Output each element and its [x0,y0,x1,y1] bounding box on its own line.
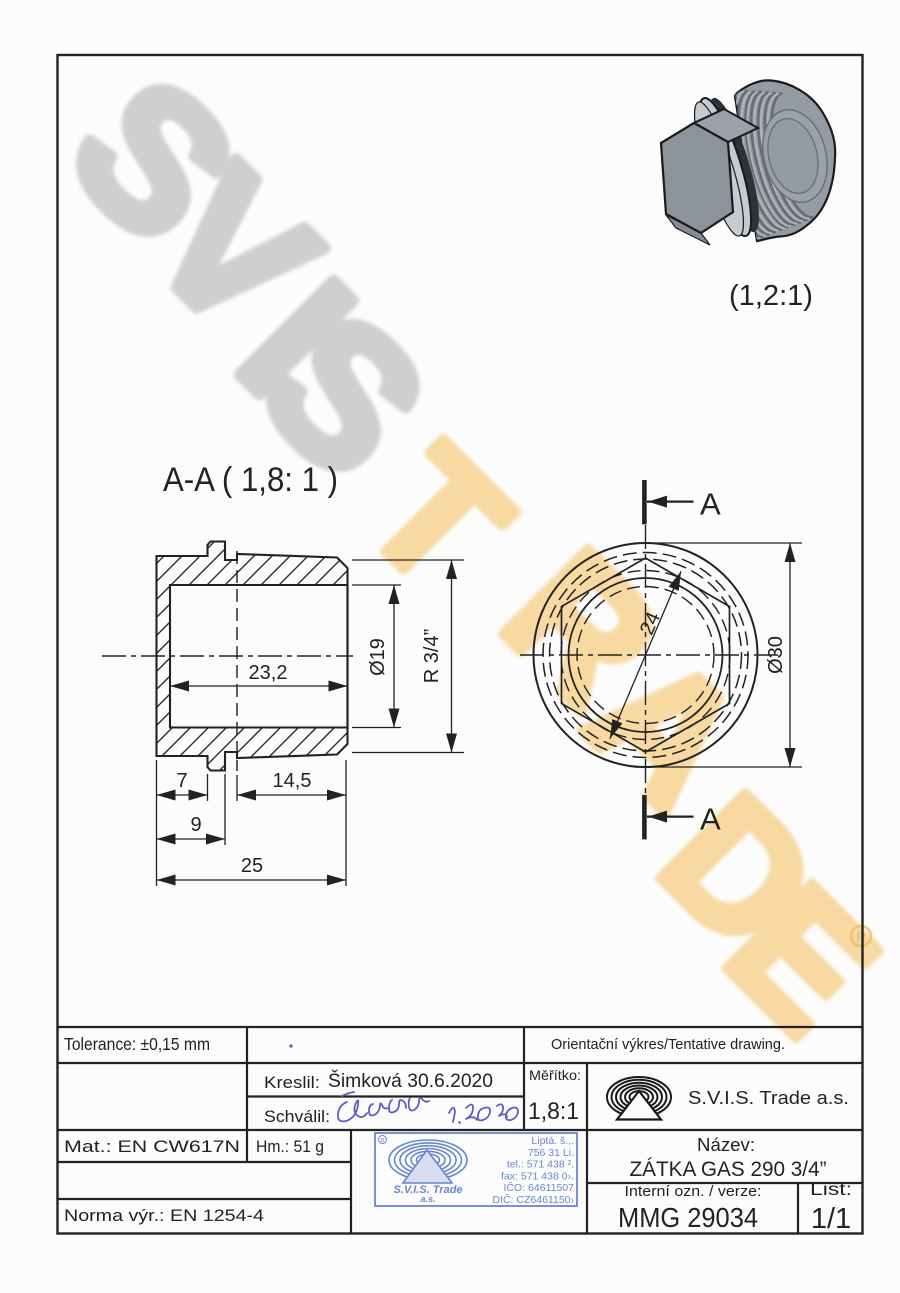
svg-text:Kreslil:: Kreslil: [264,1073,320,1092]
svg-text:Ø19: Ø19 [367,638,389,676]
svg-text:Interní ozn. / verze:: Interní ozn. / verze: [625,1183,762,1200]
svg-text:7: 7 [176,770,187,792]
svg-text:Hm.: 51 g: Hm.: 51 g [256,1137,324,1156]
svg-text:9: 9 [190,814,201,836]
svg-text:Název:: Název: [697,1135,755,1155]
svg-text:25: 25 [241,855,263,877]
svg-text:1/1: 1/1 [811,1203,851,1235]
svg-text:IČO: 64611507: IČO: 64611507 [504,1181,575,1194]
svg-text:R: R [380,1139,385,1145]
svg-text:Ø30: Ø30 [765,636,787,674]
svg-text:DIČ: CZ6461150›: DIČ: CZ6461150› [492,1193,574,1206]
svg-text:Tolerance: ±0,15 mm: Tolerance: ±0,15 mm [64,1034,210,1054]
svg-text:Liptá. š.,.: Liptá. š.,. [531,1135,574,1147]
svg-text:23,2: 23,2 [249,662,288,684]
svg-text:Orientační výkres/Tentative dr: Orientační výkres/Tentative drawing. [551,1036,785,1053]
svg-text:tel.: 571 438 ².: tel.: 571 438 ². [507,1159,574,1171]
svg-text:14,5: 14,5 [273,770,312,792]
svg-text:R: R [856,929,866,945]
svg-text:Norma výr.: EN 1254-4: Norma výr.: EN 1254-4 [64,1206,264,1225]
svg-text:fax: 571 438 0›.: fax: 571 438 0›. [501,1170,574,1182]
svg-text:MMG 29034: MMG 29034 [618,1202,758,1233]
svg-text:ZÁTKA GAS 290 3/4”: ZÁTKA GAS 290 3/4” [630,1158,827,1181]
svg-text:Schválil:: Schválil: [264,1107,330,1126]
svg-text:Mat.: EN CW617N: Mat.: EN CW617N [64,1137,240,1156]
svg-text:S.V.I.S. Trade a.s.: S.V.I.S. Trade a.s. [688,1087,849,1108]
svg-text:a.s.: a.s. [420,1194,435,1204]
svg-text:List:: List: [810,1179,852,1199]
svg-text:Šimková 30.6.2020: Šimková 30.6.2020 [328,1069,493,1092]
svg-text:1,8:1: 1,8:1 [528,1098,579,1125]
svg-text:756 31 Li.: 756 31 Li. [528,1147,574,1159]
svg-text:R 3/4”: R 3/4” [421,629,443,683]
svg-text:A: A [700,802,721,837]
svg-text:(1,2:1): (1,2:1) [729,280,813,312]
svg-text:A: A [700,487,721,522]
svg-text:Měřítko:: Měřítko: [529,1067,581,1083]
svg-text:A-A ( 1,8: 1 ): A-A ( 1,8: 1 ) [163,461,338,499]
